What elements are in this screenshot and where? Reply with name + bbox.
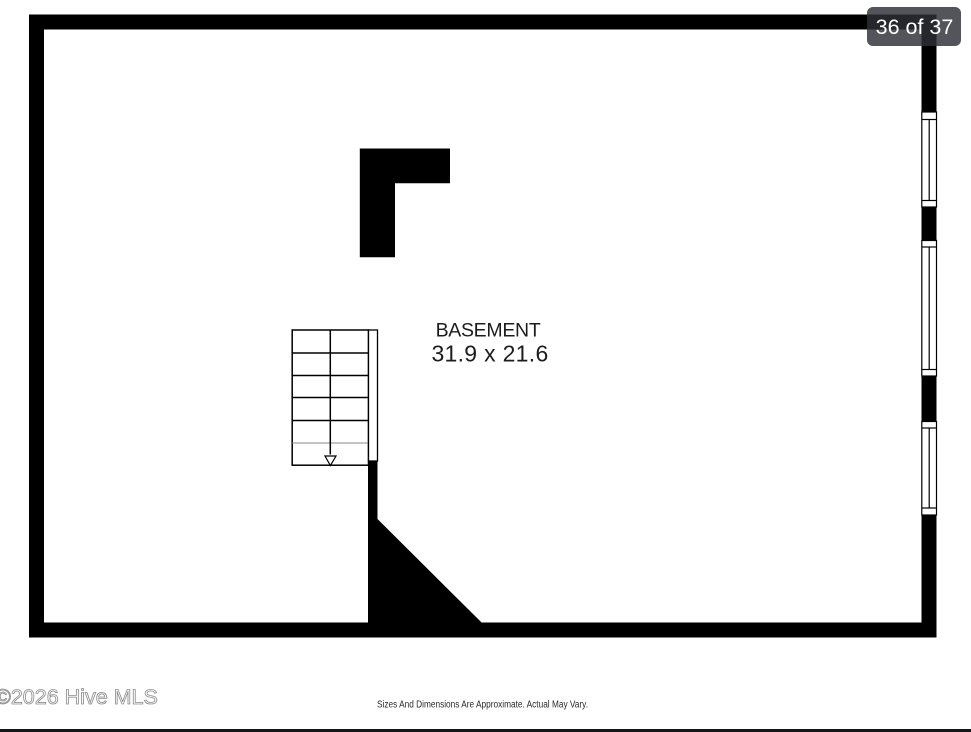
svg-text:36 of 37: 36 of 37 [876, 15, 954, 39]
svg-text:Sizes And Dimensions Are Appro: Sizes And Dimensions Are Approximate. Ac… [377, 700, 588, 711]
svg-text:31.9 x 21.6: 31.9 x 21.6 [431, 340, 548, 366]
svg-text:BASEMENT: BASEMENT [436, 320, 541, 342]
svg-text:©2026 Hive MLS: ©2026 Hive MLS [0, 685, 158, 709]
